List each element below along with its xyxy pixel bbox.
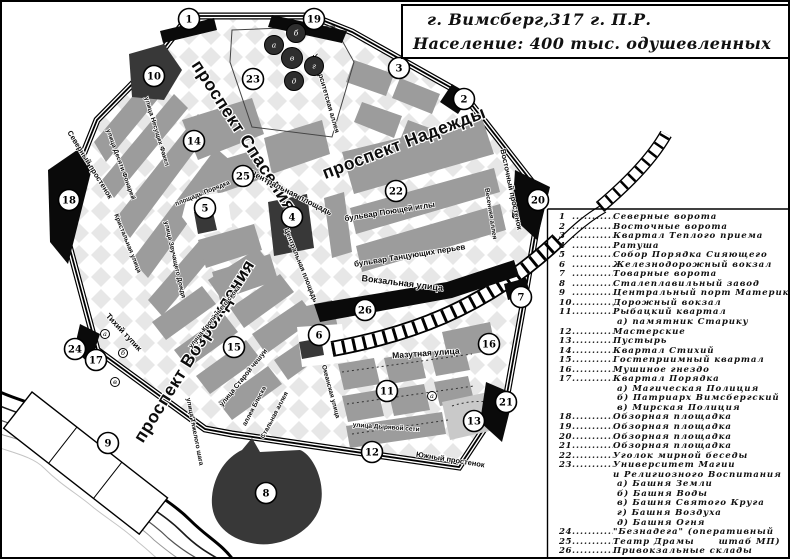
legend-item-number: 26 xyxy=(559,547,572,557)
map-marker-22: 22 xyxy=(386,181,407,202)
legend-item-label: Университет Магии xyxy=(613,460,735,470)
legend-dot-leader: .............. xyxy=(572,251,613,261)
legend-item-label: Театр Драмы xyxy=(613,537,695,547)
map-marker-12: 12 xyxy=(362,442,383,463)
legend-item-label: Обзорная площадка xyxy=(613,422,732,432)
svg-text:18: 18 xyxy=(62,195,76,206)
legend-item-number: 17 xyxy=(559,375,572,385)
legend-dot-leader: .............. xyxy=(572,223,613,233)
map-marker-10: 10 xyxy=(144,66,165,87)
map-marker-18: 18 xyxy=(59,190,80,211)
map-marker-9: 9 xyxy=(98,433,119,454)
legend-dot-leader: .............. xyxy=(572,461,613,471)
sub-marker-а: а xyxy=(428,392,437,401)
svg-text:16: 16 xyxy=(482,339,496,350)
legend-dot-leader: .............. xyxy=(572,299,613,309)
svg-text:3: 3 xyxy=(396,63,403,74)
map-marker-14: 14 xyxy=(184,131,205,152)
legend-dot-leader: .............. xyxy=(572,280,613,290)
sub-marker-а: а xyxy=(101,330,110,339)
legend-item-label: Квартал Порядка xyxy=(613,374,720,384)
map-legend: 1..............Северные ворота2.........… xyxy=(559,213,790,557)
legend-dot-leader: .............. xyxy=(572,213,613,223)
legend-dot-leader: .............. xyxy=(572,270,613,280)
legend-item-label: Железнодорожный вокзал xyxy=(613,260,772,270)
svg-text:23: 23 xyxy=(246,74,260,85)
legend-item-number: 11 xyxy=(559,308,572,318)
svg-text:20: 20 xyxy=(531,195,545,206)
svg-text:22: 22 xyxy=(389,186,403,197)
legend-dot-leader: .............. xyxy=(572,356,613,366)
svg-text:2: 2 xyxy=(461,94,468,105)
legend-item-label: Товарные ворота xyxy=(613,269,717,279)
map-marker-1: 1 xyxy=(179,9,200,30)
map-marker-23: 23 xyxy=(243,69,264,90)
map-marker-5: 5 xyxy=(195,198,216,219)
svg-text:11: 11 xyxy=(380,386,394,397)
map-marker-19: 19 xyxy=(304,9,325,30)
legend-dot-leader: .............. xyxy=(572,308,613,318)
legend-dot-leader: .............. xyxy=(572,289,613,299)
legend-item-label: Северные ворота xyxy=(613,212,717,222)
map-page: проспект Спасенияпроспект Надеждыпроспек… xyxy=(0,0,790,559)
svg-text:д: д xyxy=(292,77,297,86)
university-tower-а: а xyxy=(265,36,284,55)
legend-dot-leader: .............. xyxy=(572,232,613,242)
city-title: г. Вимсберг,317 г. П.Р. xyxy=(427,8,790,32)
svg-text:6: 6 xyxy=(316,330,323,341)
legend-item-label: Привокзальные склады xyxy=(613,546,753,556)
map-marker-13: 13 xyxy=(464,411,485,432)
map-marker-11: 11 xyxy=(377,381,398,402)
svg-text:5: 5 xyxy=(202,203,209,214)
population-line: Население: 400 тыс. одушевленных xyxy=(413,32,790,56)
legend-item-26: 26..............Привокзальные склады xyxy=(559,547,790,557)
legend-dot-leader: .............. xyxy=(572,442,613,452)
map-marker-15: 15 xyxy=(224,337,245,358)
svg-text:в: в xyxy=(113,378,117,386)
map-marker-2: 2 xyxy=(454,89,475,110)
svg-text:12: 12 xyxy=(365,447,379,458)
map-marker-6: 6 xyxy=(309,325,330,346)
svg-text:19: 19 xyxy=(307,14,321,25)
svg-text:9: 9 xyxy=(105,438,112,449)
legend-item-label: Мастерские xyxy=(613,327,686,337)
legend-item-label: Рыбацкий квартал xyxy=(613,307,727,317)
map-marker-24: 24 xyxy=(65,339,86,360)
svg-text:4: 4 xyxy=(289,212,296,223)
svg-text:14: 14 xyxy=(187,136,201,147)
svg-text:13: 13 xyxy=(467,416,481,427)
legend-item-3: 3..............Квартал Теплого приема xyxy=(559,232,790,242)
map-marker-17: 17 xyxy=(86,350,107,371)
svg-text:б: б xyxy=(294,29,299,38)
svg-text:в: в xyxy=(290,54,295,63)
svg-text:г: г xyxy=(312,62,316,71)
legend-item-label: Уголок мирной беседы xyxy=(613,451,748,461)
map-marker-3: 3 xyxy=(389,58,410,79)
map-marker-25: 25 xyxy=(233,166,254,187)
legend-dot-leader: .............. xyxy=(572,375,613,385)
legend-item-12: 12..............Мастерские xyxy=(559,328,790,338)
sub-marker-в: в xyxy=(111,378,120,387)
legend-dot-leader: .............. xyxy=(572,433,613,443)
legend-item-label: Центральный порт Материка xyxy=(613,288,790,298)
legend-dot-leader: .............. xyxy=(572,261,613,271)
svg-text:а: а xyxy=(430,392,434,400)
map-marker-26: 26 xyxy=(355,300,376,321)
legend-dot-leader: .............. xyxy=(572,242,613,252)
svg-text:а: а xyxy=(103,330,107,338)
legend-item-note: штаб МП) xyxy=(719,537,781,547)
map-marker-20: 20 xyxy=(528,190,549,211)
legend-item-label: Гостеприимный квартал xyxy=(613,355,765,365)
legend-item-label: Восточные ворота xyxy=(613,222,728,232)
legend-item-label: Квартал Теплого приема xyxy=(613,231,763,241)
legend-dot-leader: .............. xyxy=(572,528,613,538)
legend-dot-leader: .............. xyxy=(572,366,613,376)
legend-item-number: 23 xyxy=(559,461,572,471)
svg-text:б: б xyxy=(121,349,125,357)
legend-item-label: Обзорная площадка xyxy=(613,441,732,451)
legend-dot-leader: .............. xyxy=(572,413,613,423)
svg-text:26: 26 xyxy=(358,305,372,316)
legend-item-label: Пустырь xyxy=(613,336,667,346)
svg-text:7: 7 xyxy=(518,292,525,303)
map-marker-7: 7 xyxy=(511,287,532,308)
legend-dot-leader: .............. xyxy=(572,337,613,347)
legend-dot-leader: .............. xyxy=(572,347,613,357)
svg-text:15: 15 xyxy=(227,342,241,353)
svg-text:21: 21 xyxy=(499,397,513,408)
university-tower-б: б xyxy=(287,24,306,43)
university-tower-г: г xyxy=(305,57,324,76)
svg-text:8: 8 xyxy=(263,488,270,499)
legend-item-label: Собор Порядка Сияющего xyxy=(613,250,768,260)
university-tower-д: д xyxy=(285,72,304,91)
map-title-box: г. Вимсберг,317 г. П.Р. Население: 400 т… xyxy=(401,4,790,59)
legend-dot-leader: .............. xyxy=(572,547,613,557)
legend-dot-leader: .............. xyxy=(572,538,613,548)
university-tower-в: в xyxy=(282,48,303,69)
sub-marker-б: б xyxy=(119,349,128,358)
svg-text:25: 25 xyxy=(236,171,250,182)
legend-item-label: Мушиное гнездо xyxy=(613,365,710,375)
legend-item-label: Обзорная площадка xyxy=(613,412,732,422)
svg-text:24: 24 xyxy=(68,344,82,355)
legend-dot-leader: .............. xyxy=(572,423,613,433)
map-marker-4: 4 xyxy=(282,207,303,228)
map-marker-8: 8 xyxy=(256,483,277,504)
svg-text:17: 17 xyxy=(89,355,103,366)
map-marker-16: 16 xyxy=(479,334,500,355)
map-marker-21: 21 xyxy=(496,392,517,413)
legend-dot-leader: .............. xyxy=(572,328,613,338)
legend-item-label: "Безнадега" (оперативный xyxy=(613,527,774,537)
svg-text:а: а xyxy=(272,41,276,50)
svg-text:10: 10 xyxy=(147,71,161,82)
legend-dot-leader: .............. xyxy=(572,452,613,462)
svg-text:1: 1 xyxy=(186,14,193,25)
